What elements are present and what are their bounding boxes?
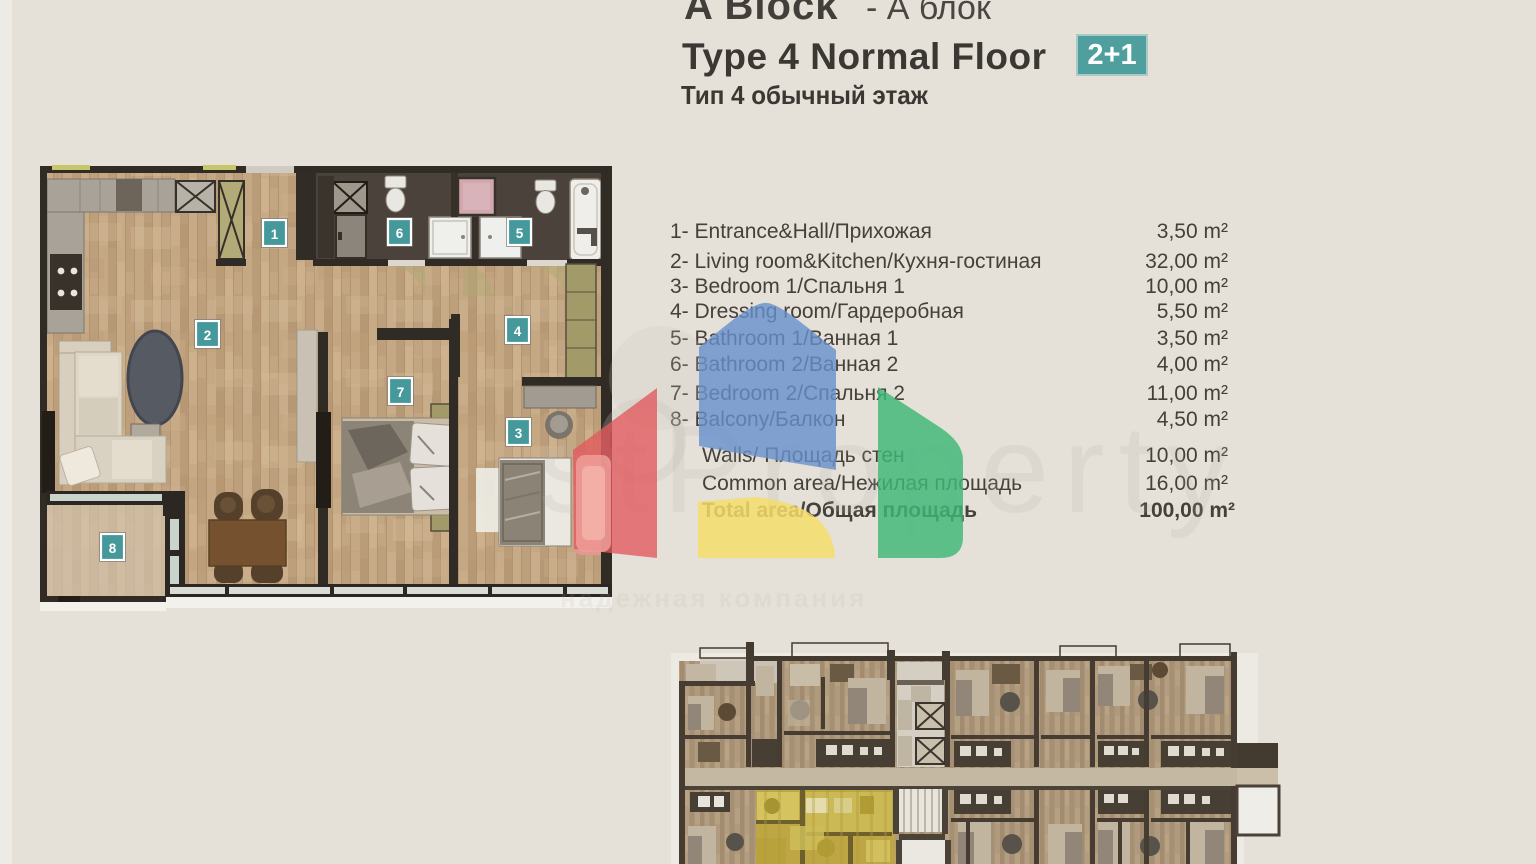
svg-text:надежная компания: надежная компания xyxy=(560,583,867,613)
